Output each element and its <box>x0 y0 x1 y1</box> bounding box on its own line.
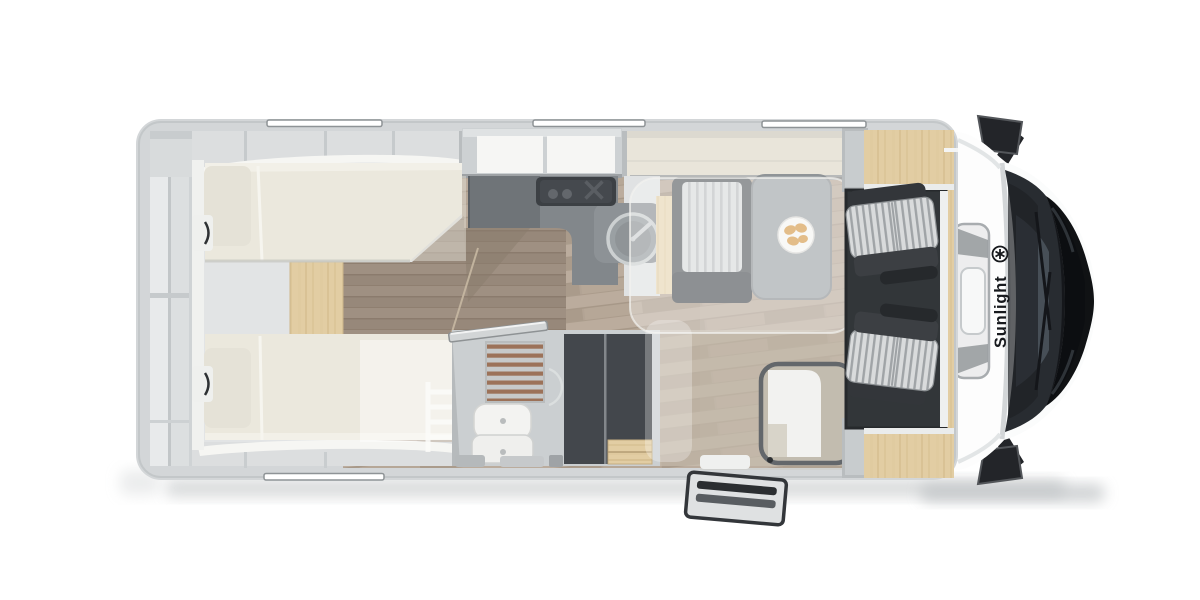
svg-text:Sunlight: Sunlight <box>992 276 1010 348</box>
